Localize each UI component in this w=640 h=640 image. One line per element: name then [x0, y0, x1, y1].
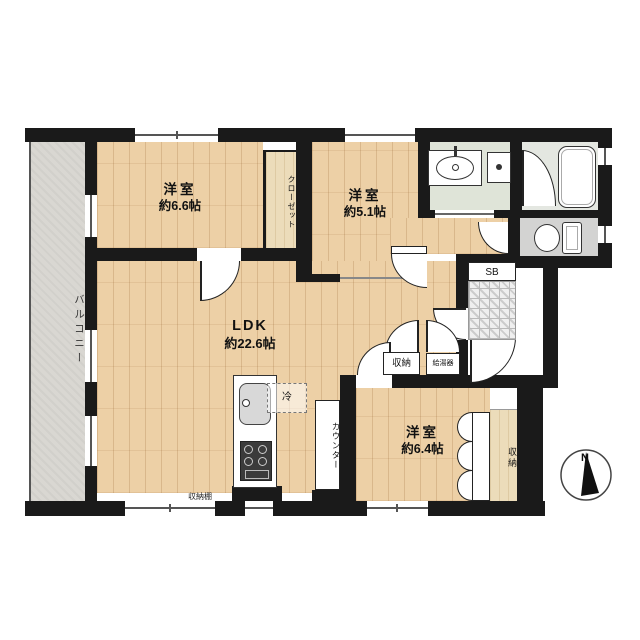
compass-north-label: N: [581, 452, 589, 464]
hall-storage-box: 収納: [383, 352, 420, 375]
faucet-icon: [454, 146, 457, 156]
sliding-jamb: [432, 210, 435, 218]
door-leaf-washroom: [391, 246, 427, 254]
washing-machine-dot: [496, 164, 502, 170]
burner-icon: [258, 445, 267, 454]
opening-bedroom3: [356, 375, 392, 388]
wall-entrance-south: [490, 375, 545, 388]
window-line: [245, 507, 273, 509]
toilet-bowl-icon: [534, 224, 560, 252]
wall-entrance-east: [543, 256, 558, 388]
compass-icon: N: [556, 444, 616, 504]
floor-plan: SB 冷 カウンター 収納 給湯器 バルコニー 洋室 約6.6帖 クローゼット …: [0, 0, 640, 640]
window-line: [90, 330, 92, 382]
burner-icon: [258, 457, 267, 466]
window-line: [345, 134, 415, 136]
bedroom1-label: 洋室: [120, 182, 240, 198]
window-line: [604, 226, 606, 243]
bathtub-inner: [561, 149, 593, 205]
opening-bedroom1: [197, 248, 241, 261]
window-line: [90, 195, 92, 237]
sliding-jamb: [494, 210, 497, 218]
kitchen-faucet-icon: [242, 399, 250, 407]
wall-bedroom3-west: [340, 375, 356, 501]
wall-under-toilet: [505, 256, 612, 268]
bedroom1-size: 約6.6帖: [120, 199, 240, 214]
window-tick: [169, 504, 171, 512]
wall-bedroom1-south: [85, 248, 305, 261]
wall-sb-west-upper: [456, 262, 468, 308]
refrigerator-box: 冷: [267, 383, 307, 413]
wall-bathroom-west: [510, 142, 522, 210]
closet-label: クローゼット: [266, 162, 296, 242]
wall-bedroom2-west: [296, 128, 312, 282]
water-heater-box: 給湯器: [426, 353, 460, 375]
shaft-box-label: SB: [468, 262, 516, 281]
balcony-label: バルコニー: [31, 270, 85, 390]
wall-bedroom3-east: [517, 388, 543, 501]
toilet-tank-inner: [566, 226, 578, 250]
grill-icon: [245, 470, 269, 479]
wall-sb-top: [456, 254, 516, 262]
ldk-size: 約22.6帖: [195, 337, 305, 352]
bedroom3-storage-label: 収納: [490, 430, 517, 485]
storage-shelf-label: 収納棚: [130, 492, 270, 502]
window-line: [604, 148, 606, 165]
counter-label: カウンター: [315, 405, 340, 487]
wall-toilet-west: [508, 218, 520, 256]
wall-bottom: [25, 501, 545, 516]
window-tick: [176, 131, 178, 139]
sliding-door-line: [432, 213, 497, 215]
compass: N: [556, 444, 616, 504]
washbasin-drain: [452, 164, 459, 171]
ldk-label: LDK: [195, 318, 305, 335]
bedroom3-label: 洋室: [370, 425, 475, 441]
burner-icon: [244, 457, 253, 466]
window-line: [90, 416, 92, 466]
window-tick: [396, 504, 398, 512]
burner-icon: [244, 445, 253, 454]
wall-counter-base: [312, 490, 356, 501]
wall-bedroom2-south-jamb1: [312, 274, 340, 282]
shaft-box-hatch: [468, 281, 516, 340]
wall-top: [25, 128, 612, 142]
bedroom2-opening-line: [340, 277, 410, 279]
step-line: [490, 409, 517, 410]
bedroom2-size: 約5.1帖: [315, 205, 415, 220]
bedroom2-label: 洋室: [315, 188, 415, 204]
entrance-step: [490, 388, 517, 410]
wall-closet-top: [263, 150, 296, 152]
bedroom3-size: 約6.4帖: [370, 442, 475, 457]
